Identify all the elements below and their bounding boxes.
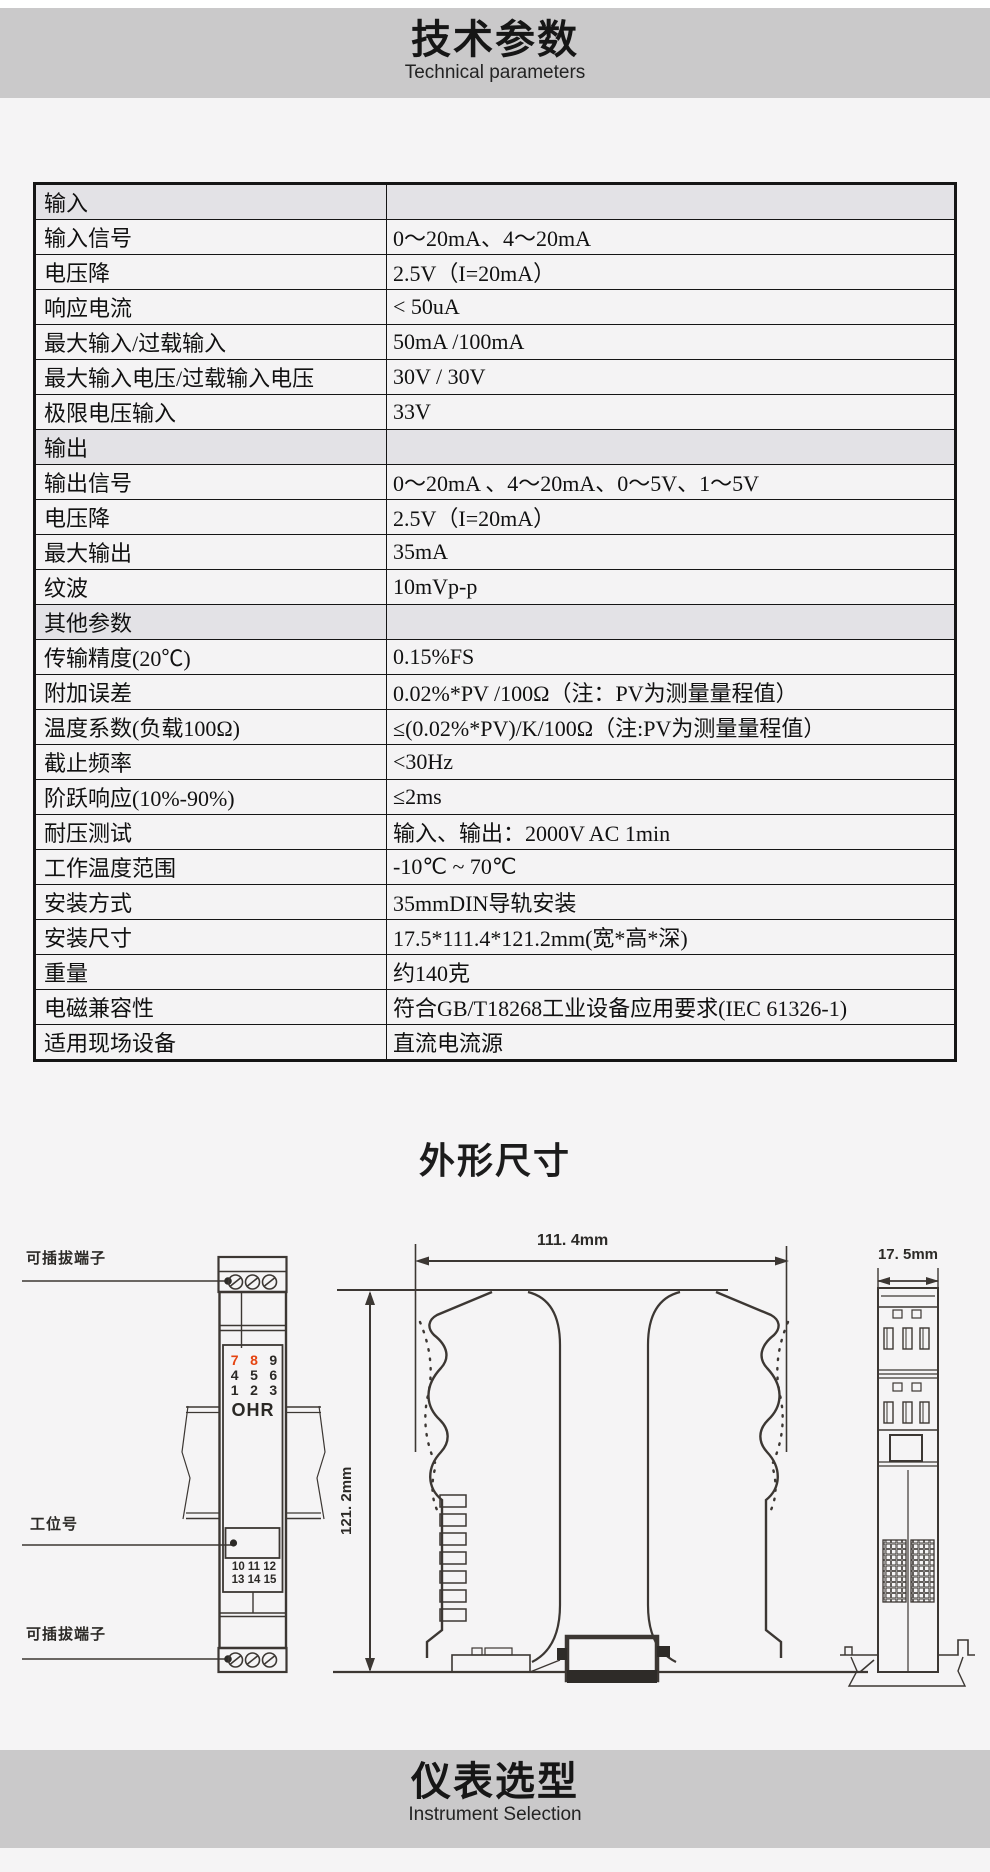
- table-row: 纹波10mVp-p: [36, 569, 954, 604]
- param-value: 0.15%FS: [387, 640, 954, 674]
- table-row: 电压降2.5V（I=20mA）: [36, 499, 954, 534]
- table-row: 阶跃响应(10%-90%)≤2ms: [36, 779, 954, 814]
- param-name: 电压降: [36, 255, 387, 289]
- spec-table: 输入输入信号0～20mA、4～20mA电压降2.5V（I=20mA）响应电流< …: [33, 182, 957, 1062]
- param-name: 附加误差: [36, 675, 387, 709]
- terminal-row-label: 10 11 12: [224, 1561, 284, 1574]
- pluggable-terminal-bottom-label: 可插拔端子: [26, 1623, 106, 1644]
- terminal-number: 7: [225, 1353, 244, 1368]
- dimensions-title: 外形尺寸: [0, 1132, 990, 1184]
- table-row: 安装尺寸17.5*111.4*121.2mm(宽*高*深): [36, 919, 954, 954]
- table-row: 输出信号0～20mA 、4～20mA、0～5V、1～5V: [36, 464, 954, 499]
- param-name: 最大输入/过载输入: [36, 325, 387, 359]
- param-name: 安装方式: [36, 885, 387, 919]
- param-name: 极限电压输入: [36, 395, 387, 429]
- param-value: 约140克: [387, 955, 954, 989]
- top-margin-strip: [0, 0, 990, 8]
- table-row: 耐压测试输入、输出：2000V AC 1min: [36, 814, 954, 849]
- param-name: 其他参数: [36, 605, 387, 639]
- table-row: 电磁兼容性符合GB/T18268工业设备应用要求(IEC 61326-1): [36, 989, 954, 1024]
- dimension-drawings: 可插拔端子 工位号 可插拔端子 111. 4mm 121. 2mm 17. 5m…: [0, 1230, 990, 1710]
- param-value: 0～20mA 、4～20mA、0～5V、1～5V: [387, 465, 954, 499]
- table-row: 输入信号0～20mA、4～20mA: [36, 219, 954, 254]
- param-name: 传输精度(20℃): [36, 640, 387, 674]
- param-name: 输入: [36, 185, 387, 219]
- table-row: 最大输出35mA: [36, 534, 954, 569]
- table-row: 温度系数(负载100Ω)≤(0.02%*PV)/K/100Ω（注:PV为测量量程…: [36, 709, 954, 744]
- table-row: 工作温度范围-10℃ ~ 70℃: [36, 849, 954, 884]
- param-value: 33V: [387, 395, 954, 429]
- param-name: 纹波: [36, 570, 387, 604]
- param-name: 适用现场设备: [36, 1025, 387, 1059]
- param-name: 响应电流: [36, 290, 387, 324]
- catalog-page: 技术参数 Technical parameters 输入输入信号0～20mA、4…: [0, 0, 990, 1872]
- param-value: 30V / 30V: [387, 360, 954, 394]
- param-name: 安装尺寸: [36, 920, 387, 954]
- param-value: 17.5*111.4*121.2mm(宽*高*深): [387, 920, 954, 954]
- param-value: ≤(0.02%*PV)/K/100Ω（注:PV为测量量程值）: [387, 710, 954, 744]
- end-view-drawing: [840, 1268, 975, 1686]
- param-value: 10mVp-p: [387, 570, 954, 604]
- param-value: 50mA /100mA: [387, 325, 954, 359]
- terminal-number: 4: [225, 1368, 244, 1383]
- param-name: 重量: [36, 955, 387, 989]
- terminal-number: 6: [264, 1368, 283, 1383]
- param-value: 输入、输出：2000V AC 1min: [387, 815, 954, 849]
- table-row: 适用现场设备直流电流源: [36, 1024, 954, 1059]
- param-name: 电压降: [36, 500, 387, 534]
- param-name: 最大输出: [36, 535, 387, 569]
- page-title: 技术参数: [0, 8, 990, 62]
- page-subtitle: Technical parameters: [0, 62, 990, 84]
- param-value: ≤2ms: [387, 780, 954, 814]
- param-value: < 50uA: [387, 290, 954, 324]
- terminal-number: 3: [264, 1383, 283, 1398]
- param-name: 耐压测试: [36, 815, 387, 849]
- param-value: 35mmDIN导轨安装: [387, 885, 954, 919]
- param-value: 符合GB/T18268工业设备应用要求(IEC 61326-1): [387, 990, 954, 1024]
- terminal-row-label: 13 14 15: [224, 1574, 284, 1587]
- terminal-grid-top: 789456123: [225, 1353, 283, 1398]
- table-row: 传输精度(20℃)0.15%FS: [36, 639, 954, 674]
- param-value: [387, 185, 954, 219]
- param-name: 截止频率: [36, 745, 387, 779]
- station-number-label: 工位号: [30, 1513, 78, 1534]
- footer-band: 仪表选型 Instrument Selection: [0, 1750, 990, 1848]
- table-row: 重量约140克: [36, 954, 954, 989]
- header-band: 技术参数 Technical parameters: [0, 8, 990, 98]
- terminal-grid-bottom: 10 11 12 13 14 15: [224, 1561, 284, 1587]
- param-value: [387, 430, 954, 464]
- param-value: 35mA: [387, 535, 954, 569]
- table-row: 安装方式35mmDIN导轨安装: [36, 884, 954, 919]
- dimension-drawing-svg: [0, 1230, 990, 1710]
- param-value: -10℃ ~ 70℃: [387, 850, 954, 884]
- param-name: 电磁兼容性: [36, 990, 387, 1024]
- table-row: 最大输入电压/过载输入电压30V / 30V: [36, 359, 954, 394]
- terminal-number: 9: [264, 1353, 283, 1368]
- param-value: 直流电流源: [387, 1025, 954, 1059]
- table-row: 极限电压输入33V: [36, 394, 954, 429]
- param-value: 0.02%*PV /100Ω（注：PV为测量量程值）: [387, 675, 954, 709]
- table-row: 附加误差0.02%*PV /100Ω（注：PV为测量量程值）: [36, 674, 954, 709]
- terminal-number: 8: [244, 1353, 263, 1368]
- param-value: [387, 605, 954, 639]
- terminal-number: 2: [244, 1383, 263, 1398]
- param-name: 工作温度范围: [36, 850, 387, 884]
- next-section-title: 仪表选型: [0, 1750, 990, 1804]
- param-name: 输出: [36, 430, 387, 464]
- side-view-drawing: [333, 1244, 874, 1683]
- param-name: 最大输入电压/过载输入电压: [36, 360, 387, 394]
- terminal-number: 5: [244, 1368, 263, 1383]
- param-name: 阶跃响应(10%-90%): [36, 780, 387, 814]
- front-view-drawing: [22, 1257, 325, 1672]
- table-row: 响应电流< 50uA: [36, 289, 954, 324]
- depth-dimension-label: 121. 2mm: [338, 1467, 355, 1535]
- table-row: 截止频率<30Hz: [36, 744, 954, 779]
- table-section-row: 其他参数: [36, 604, 954, 639]
- brand-logo: OHR: [222, 1400, 284, 1421]
- next-section-subtitle: Instrument Selection: [0, 1804, 990, 1826]
- param-name: 温度系数(负载100Ω): [36, 710, 387, 744]
- terminal-number: 1: [225, 1383, 244, 1398]
- param-value: 2.5V（I=20mA）: [387, 500, 954, 534]
- thickness-dimension-label: 17. 5mm: [870, 1246, 946, 1263]
- table-section-row: 输出: [36, 429, 954, 464]
- table-row: 电压降2.5V（I=20mA）: [36, 254, 954, 289]
- table-row: 最大输入/过载输入50mA /100mA: [36, 324, 954, 359]
- param-name: 输入信号: [36, 220, 387, 254]
- param-value: 0～20mA、4～20mA: [387, 220, 954, 254]
- table-section-row: 输入: [36, 185, 954, 219]
- param-value: 2.5V（I=20mA）: [387, 255, 954, 289]
- param-value: <30Hz: [387, 745, 954, 779]
- width-dimension-label: 111. 4mm: [537, 1232, 608, 1250]
- param-name: 输出信号: [36, 465, 387, 499]
- pluggable-terminal-top-label: 可插拔端子: [26, 1247, 106, 1268]
